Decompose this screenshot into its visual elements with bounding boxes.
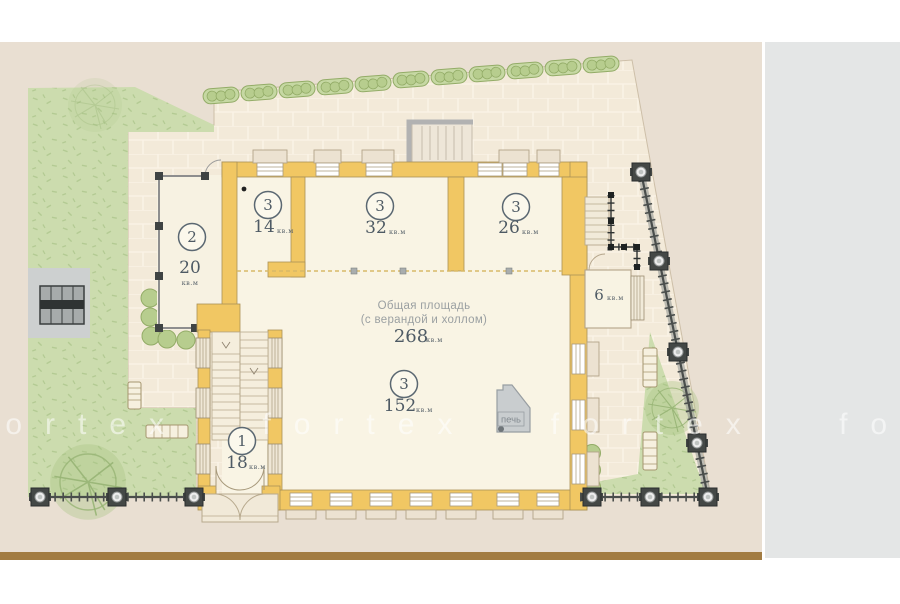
svg-text:кв.м: кв.м <box>522 228 539 236</box>
bench <box>128 382 141 409</box>
svg-text:Общая площадь: Общая площадь <box>378 300 471 312</box>
bottom-brown-bar <box>0 552 762 560</box>
svg-text:3: 3 <box>511 198 521 216</box>
fortex-watermark: fortex fortex fortex fortex <box>0 408 900 448</box>
picnic-area <box>28 268 90 338</box>
bench <box>643 348 657 387</box>
svg-text:14: 14 <box>253 217 275 237</box>
picnic-table <box>40 286 84 324</box>
svg-text:32: 32 <box>365 218 387 238</box>
site-plan-panel: печь <box>0 42 762 552</box>
side-gray-strip <box>765 42 900 558</box>
svg-text:3: 3 <box>375 197 385 215</box>
svg-text:3: 3 <box>263 196 273 214</box>
exterior-stair-top <box>409 122 473 162</box>
svg-text:(с верандой и холлом): (с верандой и холлом) <box>361 314 487 326</box>
column-dot <box>242 187 247 192</box>
svg-text:18: 18 <box>226 453 248 473</box>
page: печь <box>0 0 900 604</box>
svg-text:кв.м: кв.м <box>607 294 624 302</box>
entrance-porch <box>202 494 278 522</box>
svg-text:3: 3 <box>399 375 409 393</box>
svg-text:кв.м: кв.м <box>389 228 406 236</box>
svg-text:кв.м: кв.м <box>182 279 199 287</box>
tree <box>68 78 122 132</box>
svg-text:кв.м: кв.м <box>426 336 443 344</box>
svg-text:20: 20 <box>179 258 201 278</box>
svg-text:6: 6 <box>594 286 604 304</box>
svg-text:268: 268 <box>394 326 428 347</box>
floor-plan-drawing: печь <box>0 42 762 552</box>
svg-text:кв.м: кв.м <box>249 463 266 471</box>
svg-text:кв.м: кв.м <box>277 227 294 235</box>
svg-text:2: 2 <box>187 228 197 246</box>
tree <box>50 444 126 520</box>
svg-text:26: 26 <box>498 218 520 238</box>
